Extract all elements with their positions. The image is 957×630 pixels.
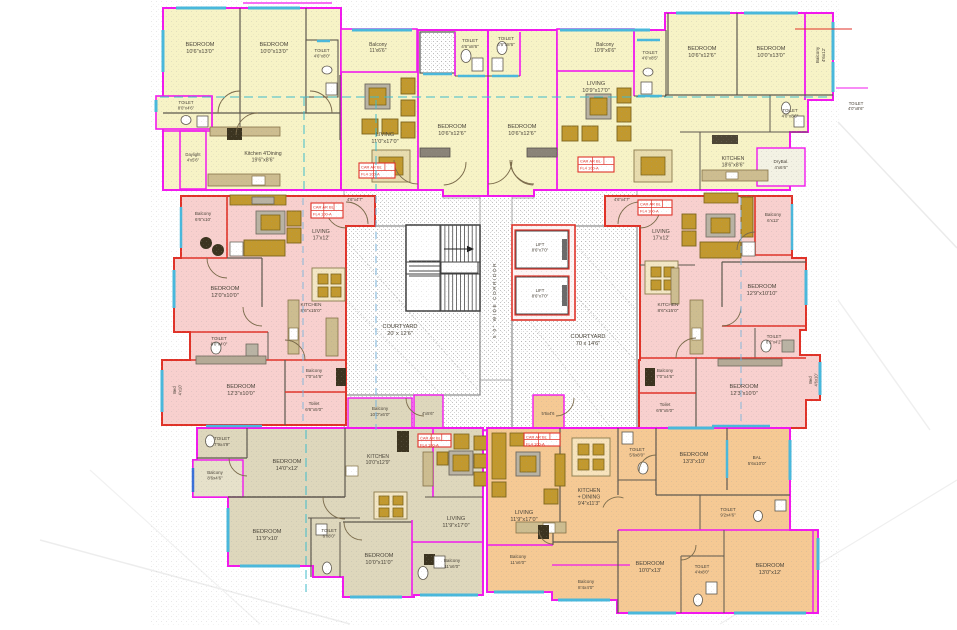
svg-text:4'0"x8'6": 4'0"x8'6" xyxy=(848,106,864,111)
